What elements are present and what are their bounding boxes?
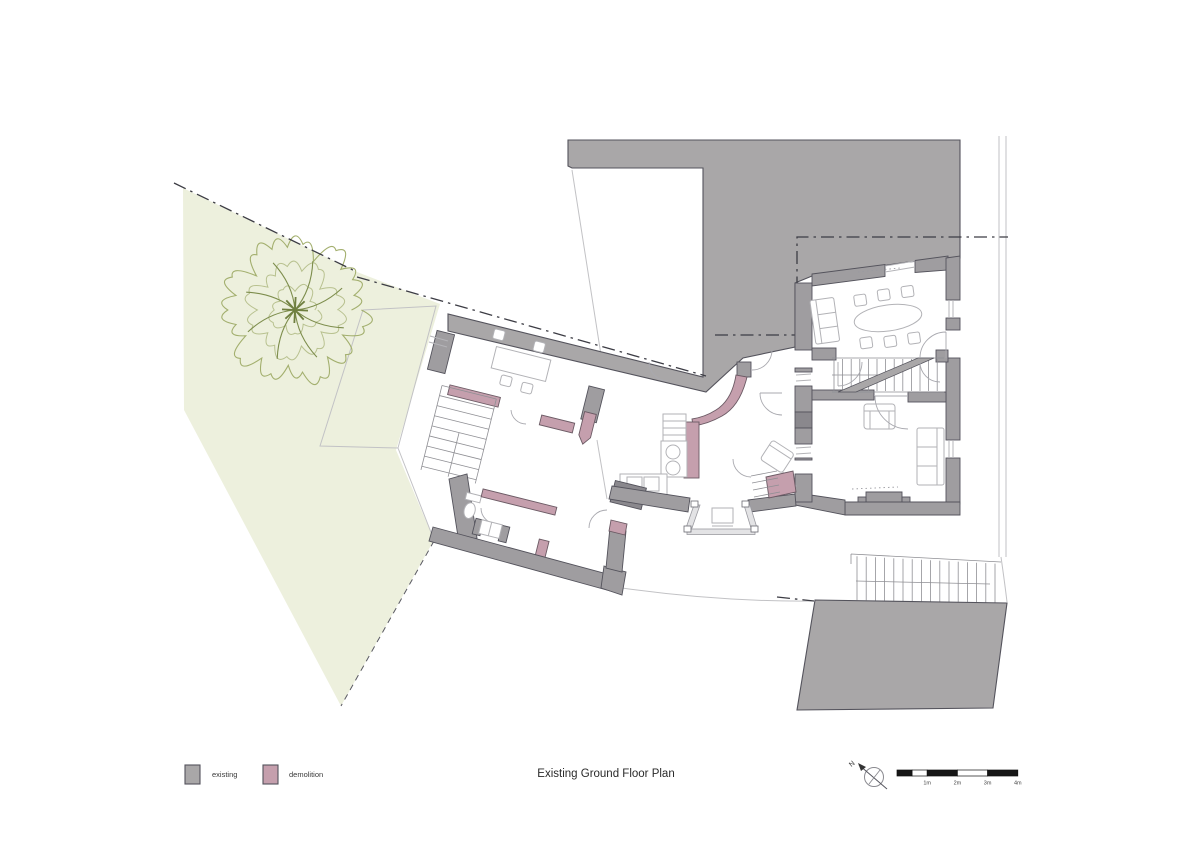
long-external-steps <box>851 554 1001 603</box>
hall-wall-stub <box>737 362 751 377</box>
wing-east-wall <box>575 386 605 446</box>
scale-label-2m: 2m <box>954 781 962 787</box>
plan-title: Existing Ground Floor Plan <box>537 768 674 780</box>
garden-step-tread <box>434 416 488 430</box>
wc-sink <box>479 520 503 539</box>
main-staircase <box>832 358 944 392</box>
sitting-armchair <box>760 440 794 473</box>
west-wing <box>421 329 627 595</box>
legend-swatch-demolition <box>263 765 278 784</box>
tree-trunk-star <box>295 297 296 310</box>
tree-trunk-star <box>294 310 295 323</box>
demolition-wall-b <box>539 415 574 433</box>
bay-table <box>712 508 733 523</box>
legend-label-demolition: demolition <box>289 770 323 779</box>
garden-step-tread <box>437 406 491 420</box>
living-ceiling-dotted-line <box>852 487 898 489</box>
scale-label-4m: 4m <box>1014 781 1022 787</box>
living-armchair <box>864 404 895 429</box>
garden-lawn <box>183 188 440 706</box>
living-room-furniture <box>864 404 944 485</box>
dining-sofa <box>810 297 840 344</box>
dining-room-furniture <box>810 285 926 358</box>
wing-south-wall <box>429 527 618 592</box>
tree-trunk-star <box>295 310 308 311</box>
scale-bar: 1m 2m 3m 4m <box>897 770 1022 787</box>
legend-item-demolition: demolition <box>263 765 323 784</box>
demolition-wall-wc <box>481 489 557 515</box>
legend-swatch-existing <box>185 765 200 784</box>
scale-label-3m: 3m <box>984 781 992 787</box>
garden-step-tread <box>432 426 486 440</box>
north-label: N <box>848 760 856 769</box>
north-arrow: N <box>848 760 887 789</box>
legend-item-existing: existing <box>185 765 237 784</box>
drawing-page: existing demolition Existing Ground Floo… <box>0 0 1200 849</box>
living-sofa <box>917 428 944 485</box>
tree-trunk-star <box>282 309 295 310</box>
wc-room <box>429 474 627 595</box>
scale-label-1m: 1m <box>923 781 931 787</box>
kitchen-units <box>620 414 687 495</box>
legend-label-existing: existing <box>212 770 237 779</box>
floor-plan-drawing: existing demolition Existing Ground Floo… <box>0 0 1200 849</box>
bay-window <box>684 501 758 535</box>
outbuilding-mass <box>797 600 1007 710</box>
courtyard-edge-line <box>572 170 601 355</box>
legend: existing demolition <box>185 765 323 784</box>
garden-area <box>183 170 601 706</box>
